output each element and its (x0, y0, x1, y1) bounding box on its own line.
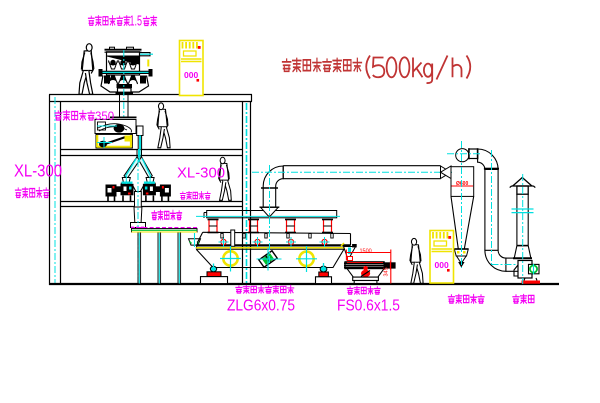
svg-text:XL-300: XL-300 (177, 165, 225, 182)
svg-text:1500: 1500 (360, 249, 372, 255)
svg-text:345: 345 (384, 267, 390, 276)
svg-text:1.5: 1.5 (130, 14, 143, 30)
svg-text:000: 000 (184, 70, 198, 80)
svg-text:FS0.6x1.5: FS0.6x1.5 (337, 298, 400, 315)
svg-text:000: 000 (435, 260, 449, 270)
svg-text:Ø600: Ø600 (456, 181, 468, 187)
svg-text:ZLG6x0.75: ZLG6x0.75 (227, 298, 295, 315)
svg-text:XL-300: XL-300 (14, 161, 62, 181)
svg-text:350: 350 (95, 111, 114, 123)
